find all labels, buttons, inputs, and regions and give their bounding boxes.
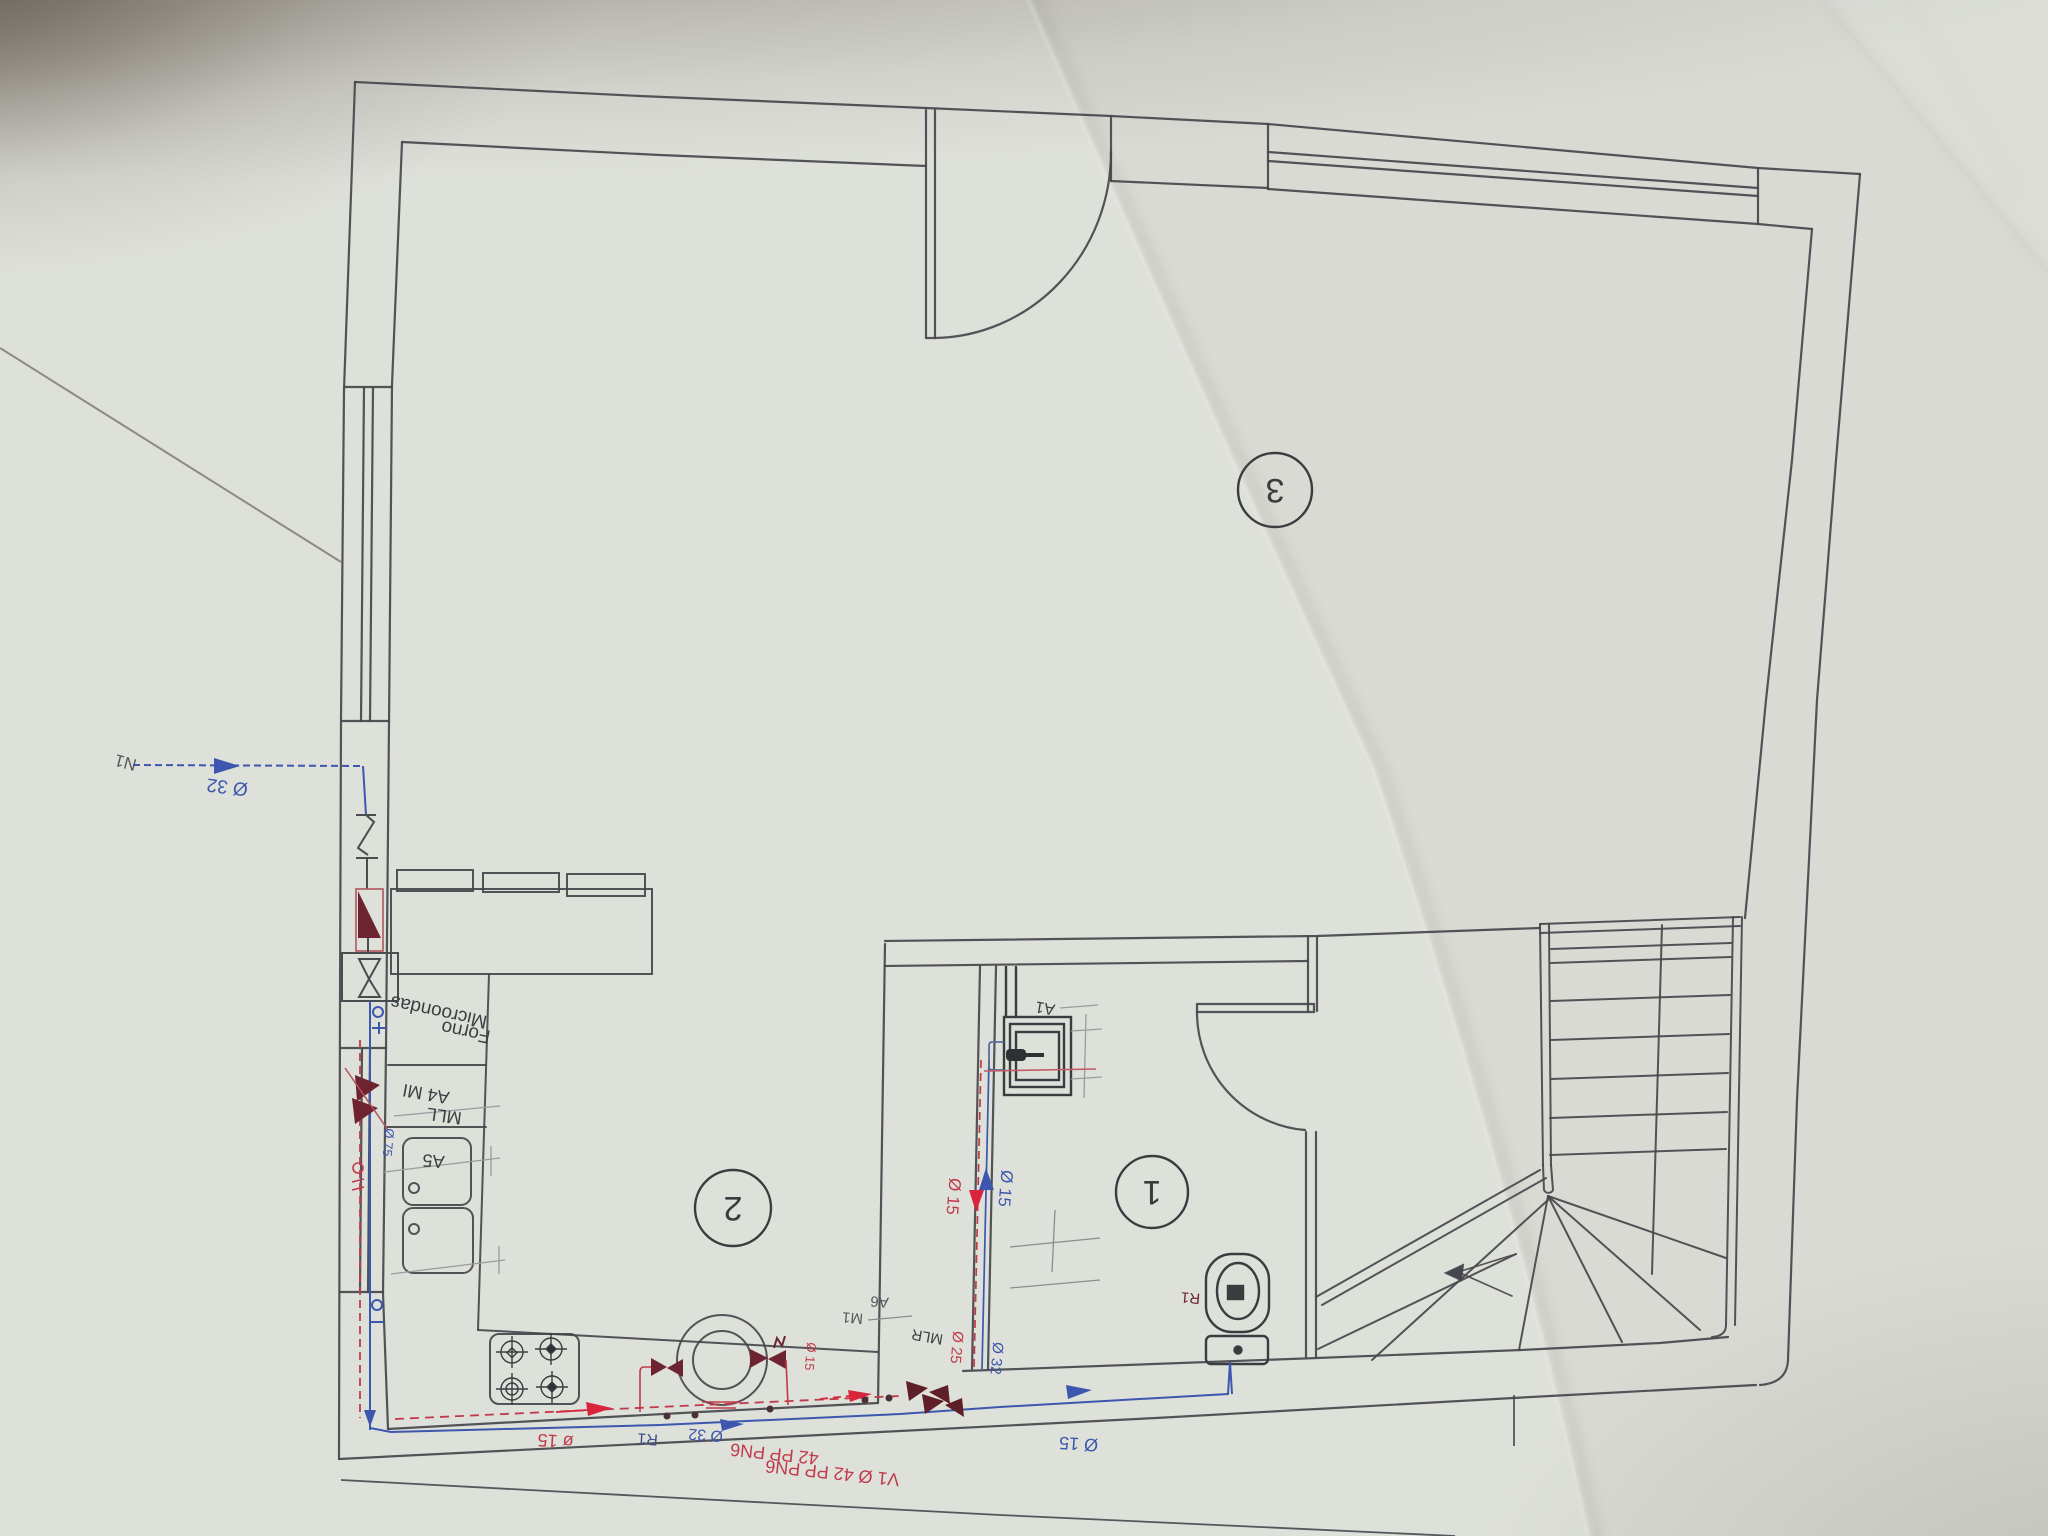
svg-text:Ø 15: Ø 15	[942, 1177, 964, 1215]
svg-text:ø 15: ø 15	[537, 1430, 574, 1452]
svg-text:Ø 25: Ø 25	[947, 1330, 967, 1364]
svg-text:A6: A6	[870, 1292, 890, 1311]
svg-text:A1: A1	[1034, 997, 1056, 1017]
svg-text:Ø 32: Ø 32	[688, 1425, 724, 1444]
svg-text:Ø 15: Ø 15	[994, 1169, 1016, 1207]
svg-text:A5: A5	[422, 1150, 446, 1172]
svg-text:2: 2	[724, 1189, 743, 1227]
svg-text:M1: M1	[841, 1308, 863, 1327]
svg-text:Ø 15: Ø 15	[1058, 1433, 1098, 1456]
svg-text:1: 1	[1143, 1173, 1162, 1211]
svg-text:Ø 32: Ø 32	[987, 1341, 1007, 1375]
svg-text:R1: R1	[637, 1429, 659, 1447]
svg-text:3: 3	[1266, 471, 1285, 509]
svg-text:Ø 15: Ø 15	[802, 1342, 819, 1371]
svg-text:R1: R1	[1180, 1288, 1201, 1307]
svg-text:Ø 75: Ø 75	[380, 1128, 397, 1157]
